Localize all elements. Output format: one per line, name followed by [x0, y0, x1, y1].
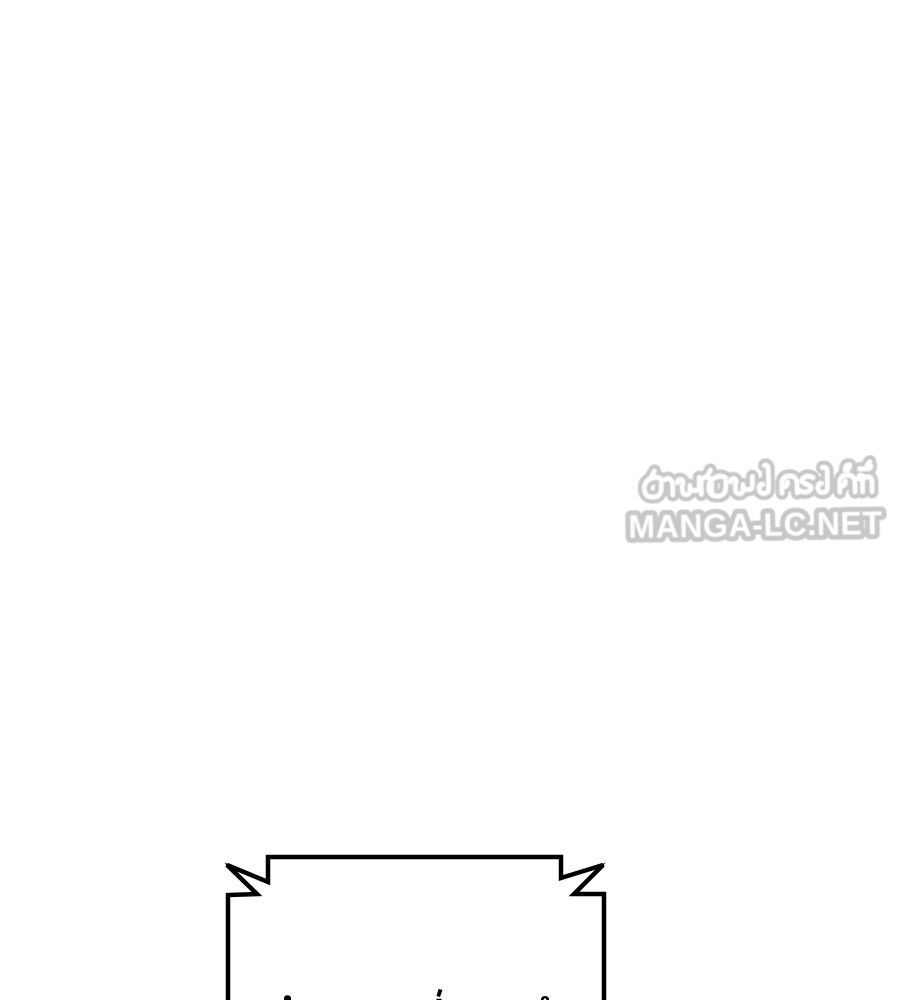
svg-text:MANGA-LC.NET: MANGA-LC.NET	[628, 505, 883, 545]
